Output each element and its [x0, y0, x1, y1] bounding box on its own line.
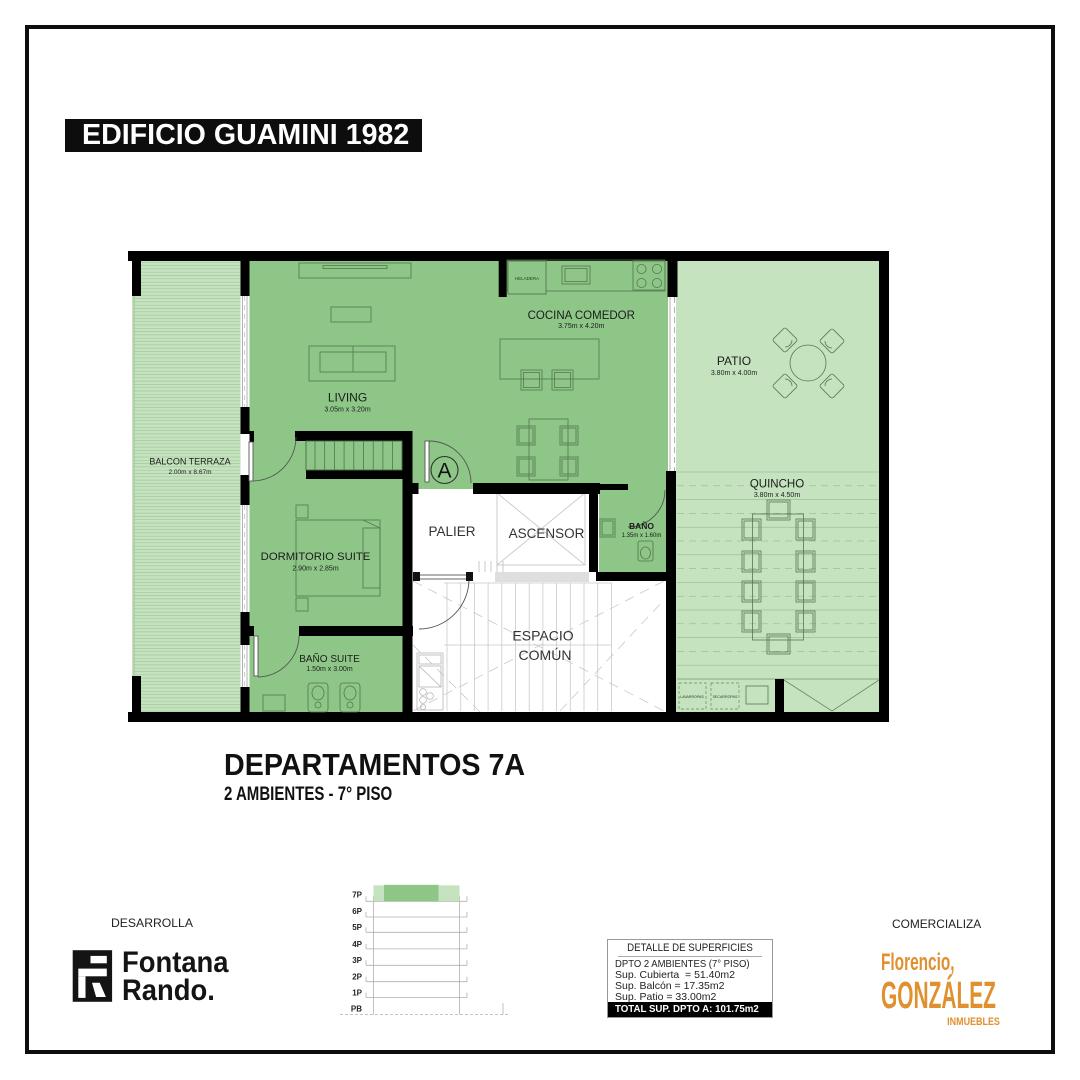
svg-text:3.80m x 4.50m: 3.80m x 4.50m — [754, 492, 800, 499]
svg-text:1.35m x 1.60m: 1.35m x 1.60m — [622, 533, 662, 539]
svg-text:2P: 2P — [352, 973, 362, 982]
svg-text:HELADERA: HELADERA — [515, 276, 539, 281]
svg-text:BALCON TERRAZA: BALCON TERRAZA — [149, 457, 230, 467]
svg-text:LAVARROPAS: LAVARROPAS — [680, 695, 704, 699]
svg-text:ESPACIO: ESPACIO — [512, 628, 573, 644]
svg-text:A: A — [437, 460, 451, 483]
svg-text:2.90m x 2.85m: 2.90m x 2.85m — [292, 566, 338, 573]
svg-text:6P: 6P — [352, 907, 362, 916]
svg-text:7P: 7P — [352, 891, 362, 900]
svg-text:SECARROPAS: SECARROPAS — [713, 695, 738, 699]
svg-text:QUINCHO: QUINCHO — [750, 479, 804, 491]
svg-text:DORMITORIO SUITE: DORMITORIO SUITE — [261, 551, 371, 563]
svg-text:2.00m x 8.67m: 2.00m x 8.67m — [169, 469, 212, 476]
svg-text:4P: 4P — [352, 940, 362, 949]
svg-text:PB: PB — [351, 1005, 362, 1014]
svg-text:3.75m x 4.20m: 3.75m x 4.20m — [558, 323, 604, 330]
svg-text:3.05m x 3.20m: 3.05m x 3.20m — [324, 407, 370, 414]
svg-text:PATIO: PATIO — [717, 354, 751, 368]
svg-text:PALIER: PALIER — [428, 524, 475, 539]
svg-text:BAÑO: BAÑO — [629, 521, 654, 531]
svg-text:5P: 5P — [352, 923, 362, 932]
svg-text:1.50m x 3.00m: 1.50m x 3.00m — [306, 666, 352, 673]
svg-text:COMÚN: COMÚN — [519, 647, 572, 663]
svg-text:LIVING: LIVING — [328, 391, 367, 405]
svg-text:1P: 1P — [352, 989, 362, 998]
svg-text:3.80m x 4.00m: 3.80m x 4.00m — [711, 370, 757, 377]
svg-text:COCINA COMEDOR: COCINA COMEDOR — [528, 310, 635, 322]
svg-text:ASCENSOR: ASCENSOR — [509, 526, 585, 541]
svg-text:BAÑO SUITE: BAÑO SUITE — [299, 652, 360, 665]
svg-text:3P: 3P — [352, 956, 362, 965]
